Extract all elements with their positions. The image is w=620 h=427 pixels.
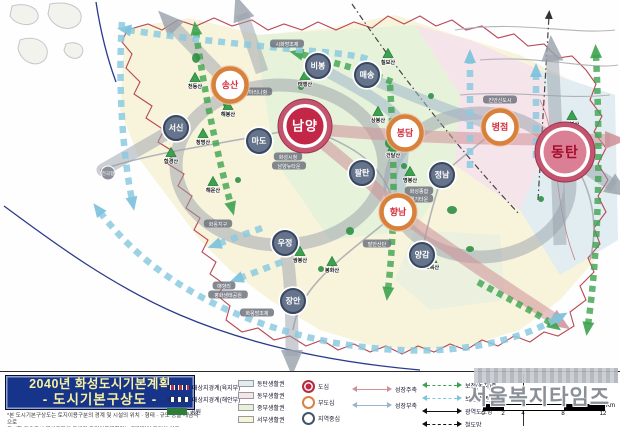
- zone-swatch-central: [238, 404, 254, 411]
- node-local: 양감: [409, 242, 436, 269]
- node-local: 정남: [429, 162, 456, 189]
- svg-text:남양: 남양: [292, 119, 318, 134]
- place-label: 남양뉴타운: [272, 162, 306, 170]
- place-label: 화옹방조제: [240, 309, 274, 317]
- svg-text:명봉산: 명봉산: [403, 176, 418, 184]
- legend-label: 동부생활권: [257, 391, 285, 400]
- svg-text:마도: 마도: [252, 136, 267, 146]
- node-local: 비봉: [305, 53, 332, 80]
- svg-text:화옹방조제: 화옹방조제: [245, 310, 268, 317]
- node-sub: 병점: [481, 108, 519, 146]
- svg-text:함경산: 함경산: [164, 157, 179, 165]
- node-local: 매송: [354, 62, 381, 89]
- legend-growth-axes: 성장주축 성장부축: [352, 385, 417, 413]
- node-local: 마도: [246, 128, 273, 155]
- node-main: 동탄: [535, 122, 595, 182]
- hwaseong-plan-map-image: 시화방조제마리나항화성시청남양뉴타운진안신도시화성종합경기타운발안산단화옹지구매…: [0, 0, 620, 427]
- legend-label: 성장부축: [395, 401, 417, 410]
- legend-centers: 도심 부도심 지역중심: [302, 380, 340, 427]
- place-label: 진안신도시: [483, 96, 517, 104]
- node-local: 팔탄: [349, 160, 376, 187]
- svg-text:봉화산: 봉화산: [325, 266, 340, 274]
- svg-text:팔탄: 팔탄: [355, 168, 370, 178]
- map-subtitle: - 도시기본구상도 -: [43, 392, 157, 408]
- svg-text:해운산: 해운산: [206, 186, 221, 194]
- svg-text:서신: 서신: [169, 123, 184, 133]
- watermark: 서울복지타임즈: [458, 381, 620, 411]
- svg-text:화성종합: 화성종합: [410, 188, 429, 195]
- zone-swatch-dongtan: [238, 380, 254, 387]
- svg-text:태행산: 태행산: [298, 80, 313, 88]
- svg-text:상봉산: 상봉산: [371, 116, 386, 124]
- legend-label: 성장주축: [395, 385, 417, 394]
- rail-network-swatch: [427, 424, 457, 425]
- svg-text:송산: 송산: [222, 79, 239, 90]
- scale-tick: 2: [501, 411, 504, 417]
- harbor-marker: 전곡항: [101, 166, 115, 180]
- svg-text:매송: 매송: [360, 70, 375, 80]
- zone-swatch-west: [238, 416, 254, 423]
- growth-main-axis-swatch: [357, 389, 387, 390]
- node-sub: 향남: [379, 193, 417, 231]
- coast-boundary-swatch: [167, 397, 189, 402]
- legend-label: 공원: [190, 407, 201, 416]
- legend-life-zones: 동탄생활권 동부생활권 중부생활권 서부생활권: [238, 379, 285, 427]
- legend-label: 지역중심: [318, 414, 340, 423]
- svg-text:전곡항: 전곡항: [102, 170, 115, 177]
- svg-text:진안신도시: 진안신도시: [488, 97, 511, 104]
- svg-text:화옹지구: 화옹지구: [209, 221, 228, 228]
- local-center-swatch: [302, 412, 315, 425]
- legend-label: 중부생활권: [257, 403, 285, 412]
- scale-tick: 8: [561, 411, 564, 417]
- map-title-box: 2040년 화성도시기본계획 - 도시기본구상도 -: [6, 376, 194, 409]
- svg-text:마리나항: 마리나항: [249, 89, 268, 96]
- place-label: 매향리: [213, 282, 236, 290]
- svg-text:장안: 장안: [286, 296, 301, 306]
- place-label: 평화생태공원: [208, 291, 248, 299]
- legend-label: 서부생활권: [257, 415, 285, 424]
- svg-text:남양뉴타운: 남양뉴타운: [277, 163, 300, 170]
- plan-title: 2040년 화성도시기본계획: [29, 378, 171, 392]
- svg-text:봉담: 봉담: [397, 127, 414, 138]
- scale-tick: 12: [600, 411, 607, 417]
- svg-text:향남: 향남: [390, 206, 407, 217]
- place-label: 화성시청: [274, 153, 302, 161]
- park-swatch: [167, 408, 187, 415]
- svg-text:칠보산: 칠보산: [381, 58, 396, 66]
- svg-text:매향리: 매향리: [217, 283, 231, 290]
- map-canvas: 시화방조제마리나항화성시청남양뉴타운진안신도시화성종합경기타운발안산단화옹지구매…: [0, 0, 620, 371]
- zone-swatch-east: [238, 392, 254, 399]
- scale-tick: 0: [481, 411, 484, 417]
- land-boundary-swatch: [167, 385, 189, 390]
- legend-label: 대상지경계(해안부): [192, 395, 240, 404]
- node-main: 남양: [278, 99, 332, 153]
- legend-boundaries: 대상지경계(육지부) 대상지경계(해안부) 공원: [167, 383, 240, 419]
- place-label: 화성종합: [405, 187, 433, 195]
- water-axis-swatch: [427, 398, 457, 399]
- svg-text:시화방조제: 시화방조제: [275, 41, 298, 48]
- svg-text:양감: 양감: [415, 250, 430, 260]
- scale-tick: 4: [521, 411, 524, 417]
- legend-label: 대상지경계(육지부): [192, 383, 240, 392]
- svg-text:평화생태공원: 평화생태공원: [214, 292, 242, 299]
- svg-text:우정: 우정: [278, 238, 293, 248]
- place-label: 시화방조제: [270, 40, 304, 48]
- svg-text:발안산단: 발안산단: [368, 241, 387, 248]
- node-sub: 봉담: [386, 114, 424, 152]
- sub-center-swatch: [302, 396, 315, 409]
- growth-sub-axis-swatch: [357, 405, 387, 406]
- svg-text:쌍봉산: 쌍봉산: [293, 256, 308, 264]
- legend-label: 도심: [318, 382, 329, 391]
- place-label: 화옹지구: [204, 220, 232, 228]
- legend-label: 부도심: [318, 398, 335, 407]
- legend-label: 동탄생활권: [257, 379, 285, 388]
- road-network-swatch: [427, 411, 457, 412]
- place-label: 발안산단: [363, 240, 391, 248]
- legend-label: 철도망: [465, 420, 482, 427]
- svg-text:동탄: 동탄: [551, 144, 579, 160]
- svg-text:천등산: 천등산: [188, 82, 203, 90]
- scale-ticks: 0 2 4 8 12: [483, 411, 613, 419]
- node-local: 우정: [272, 230, 299, 257]
- svg-text:청명산: 청명산: [196, 138, 211, 146]
- urban-center-swatch: [302, 380, 315, 393]
- svg-text:정남: 정남: [435, 170, 450, 180]
- svg-text:해봉산: 해봉산: [221, 110, 236, 118]
- svg-text:비봉: 비봉: [311, 61, 326, 71]
- svg-text:화성시청: 화성시청: [279, 154, 297, 161]
- node-sub: 송산: [211, 66, 249, 104]
- node-local: 장안: [280, 288, 307, 315]
- svg-text:건달산: 건달산: [386, 151, 401, 159]
- node-local: 서신: [163, 115, 190, 142]
- green-axis-swatch: [427, 385, 457, 386]
- svg-text:병점: 병점: [492, 121, 509, 132]
